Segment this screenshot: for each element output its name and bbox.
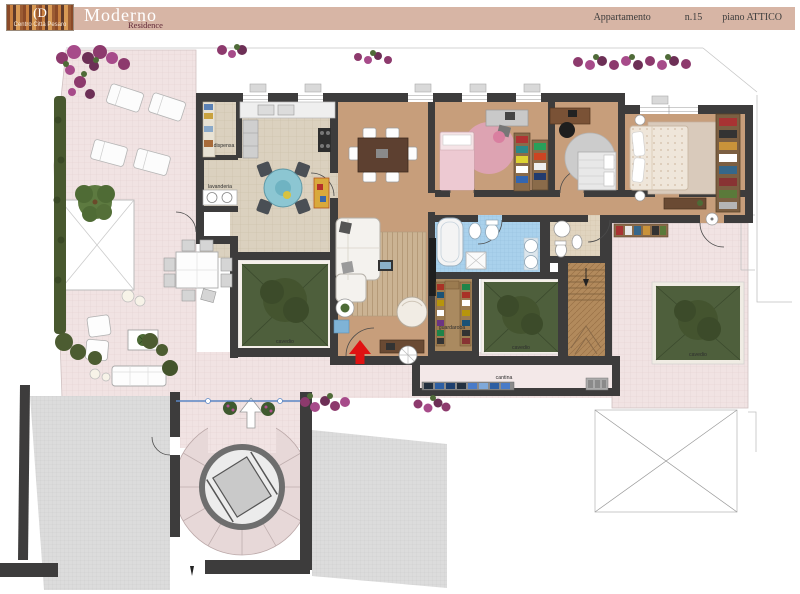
brand-logo: (D Centro Città Pesaro bbox=[6, 4, 74, 31]
flower-bed-top-small bbox=[217, 44, 392, 64]
bed-child bbox=[440, 132, 474, 190]
floor-label: piano ATTICO bbox=[722, 12, 782, 23]
pantry-label: dispensa bbox=[214, 143, 235, 149]
toilet bbox=[486, 224, 499, 240]
bidet-2 bbox=[572, 235, 582, 249]
bed-guest bbox=[578, 152, 616, 190]
shower bbox=[466, 252, 486, 269]
lightwell-2: cavedio bbox=[481, 279, 561, 354]
lightwell-1: cavedio bbox=[238, 260, 332, 350]
master-wardrobe bbox=[716, 114, 740, 212]
laundry-label: lavanderia bbox=[208, 184, 232, 190]
office-chair bbox=[559, 122, 575, 138]
apartment-label: Appartamento bbox=[594, 12, 651, 23]
lightwell-1-label: cavedio bbox=[276, 339, 294, 345]
apartment-number: n.15 bbox=[685, 12, 703, 23]
flower-bed-top-right bbox=[573, 54, 691, 70]
brand-subtitle: Residence bbox=[128, 20, 163, 30]
brand-logo-caption: Centro Città Pesaro bbox=[7, 22, 73, 29]
elevator bbox=[202, 447, 282, 527]
lightwell-3-label: cavedio bbox=[689, 352, 707, 358]
header-apartment-info: Appartamento n.15 piano ATTICO bbox=[594, 12, 782, 23]
wardrobe-room-label: guardaroba bbox=[439, 325, 466, 331]
laundry: lavanderia bbox=[203, 184, 237, 205]
sink bbox=[554, 221, 570, 237]
sink-round-2 bbox=[525, 256, 538, 269]
bed-master bbox=[630, 126, 688, 190]
sink-round-1 bbox=[525, 240, 538, 253]
bidet bbox=[469, 223, 481, 239]
cellar-label: cantina bbox=[496, 375, 513, 381]
lightwell-2-label: cavedio bbox=[512, 345, 530, 351]
brand-logo-symbol: (D bbox=[7, 6, 73, 19]
floorplan-drawing: cavedio cavedio cavedio bbox=[0, 0, 800, 594]
lightwell-3: cavedio bbox=[652, 282, 744, 364]
shoe-shelf bbox=[614, 224, 668, 237]
floorplan-page: cavedio cavedio cavedio bbox=[0, 0, 800, 594]
tv bbox=[429, 238, 436, 296]
